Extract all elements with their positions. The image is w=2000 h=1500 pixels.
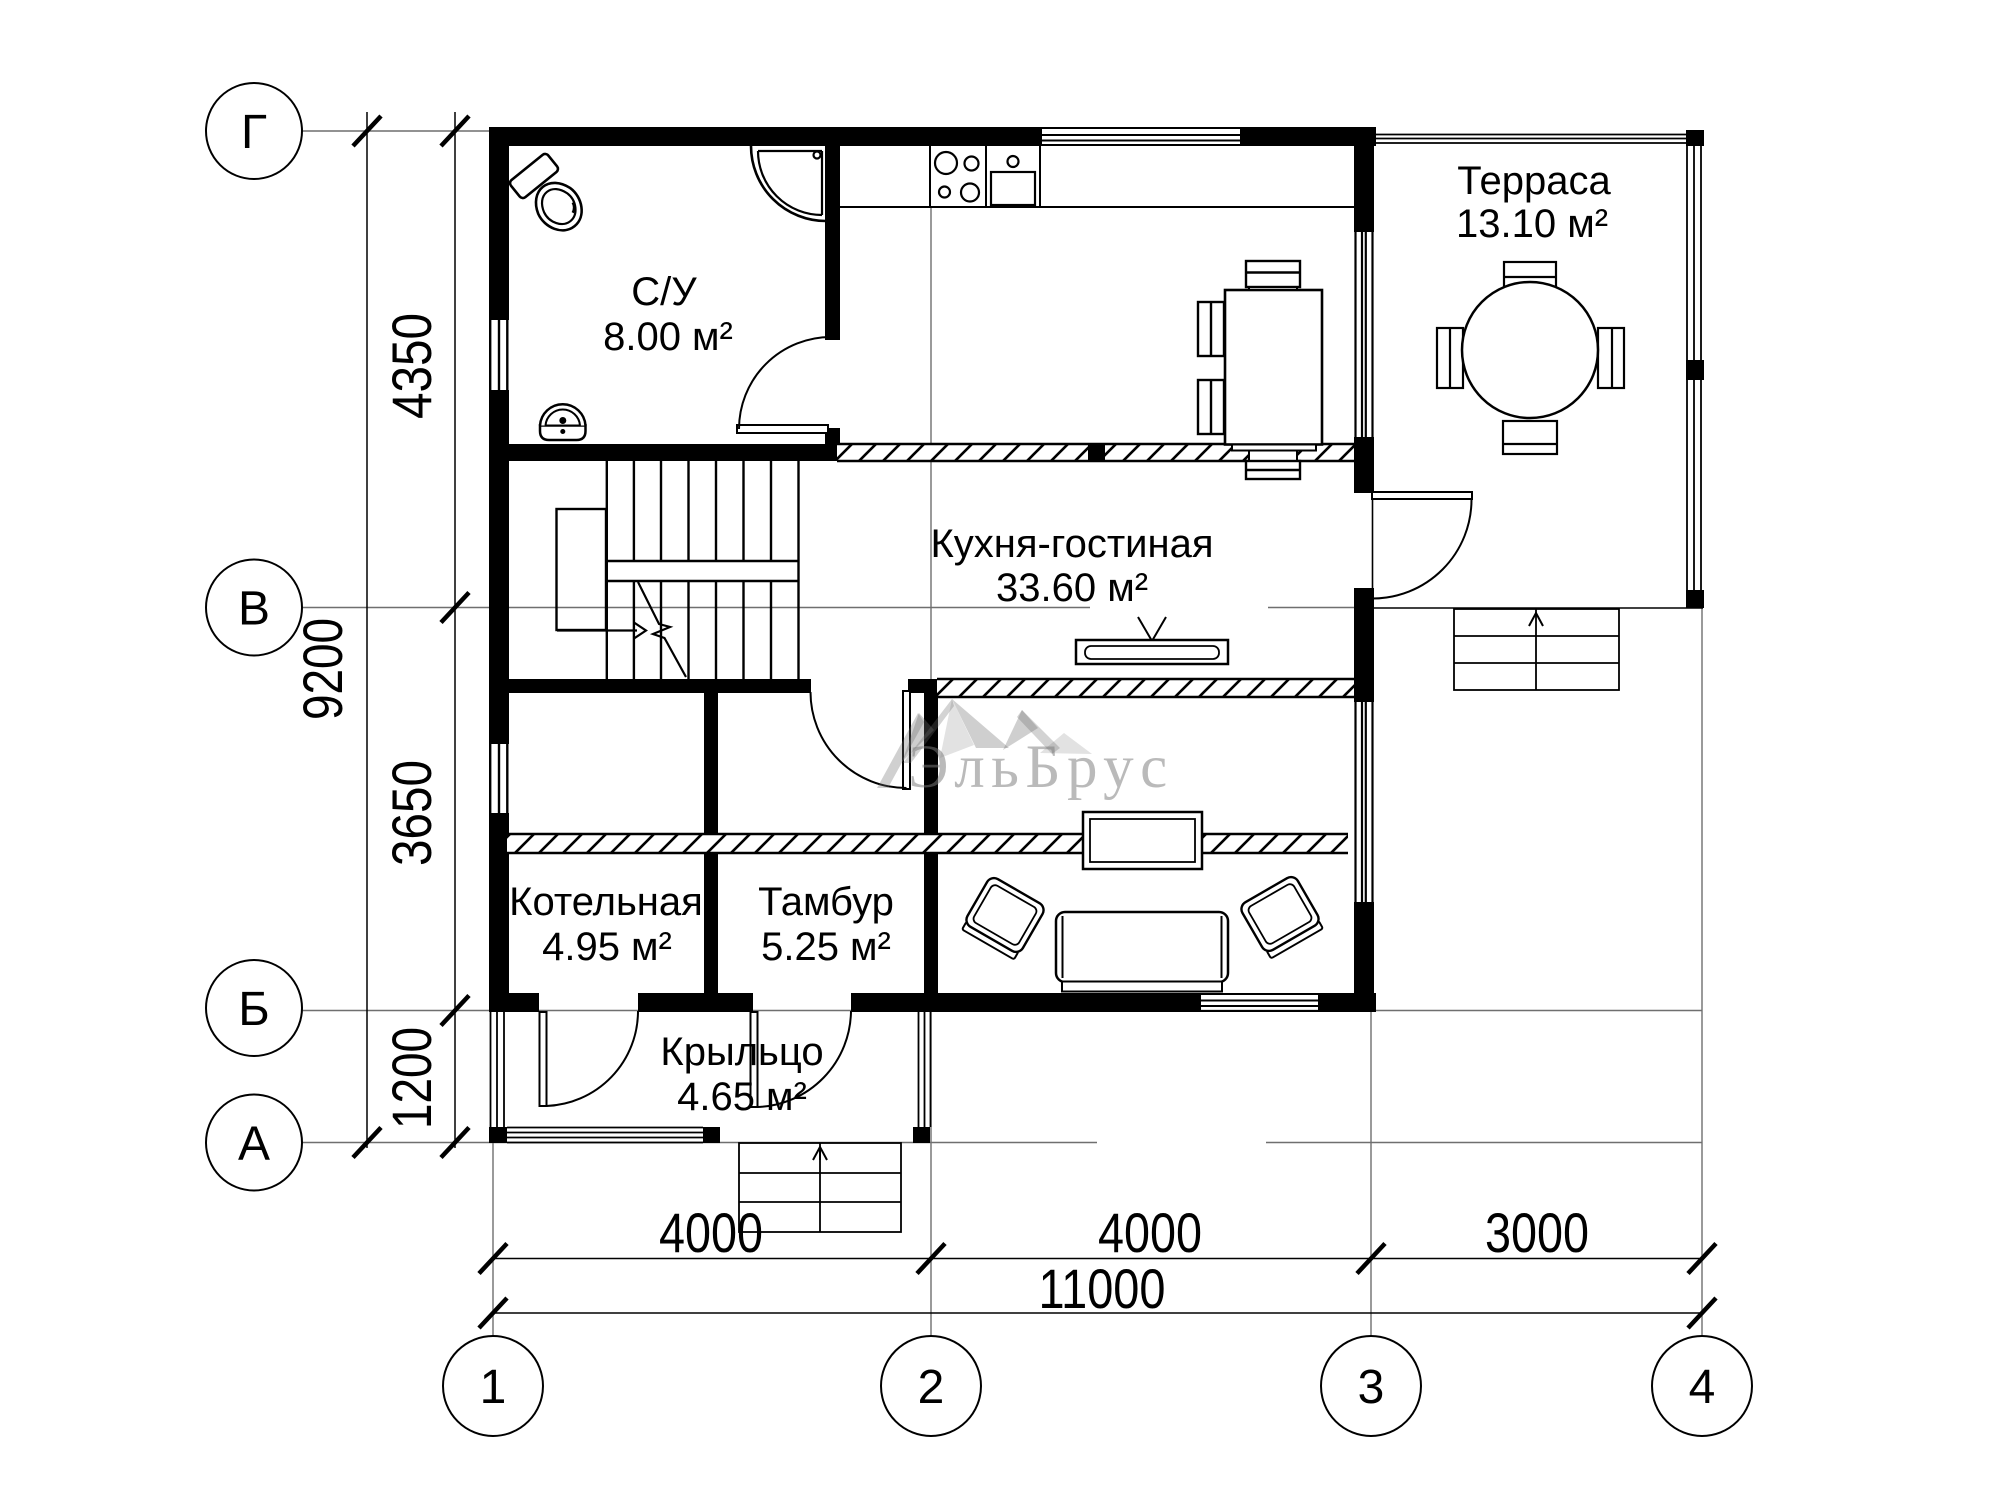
svg-text:ЭльБрус: ЭльБрус bbox=[908, 734, 1174, 801]
svg-text:8.00 м²: 8.00 м² bbox=[603, 315, 733, 359]
svg-text:4.65 м²: 4.65 м² bbox=[677, 1075, 807, 1119]
svg-text:3000: 3000 bbox=[1485, 1201, 1589, 1264]
svg-text:Котельная: Котельная bbox=[509, 880, 703, 924]
svg-text:Б: Б bbox=[238, 983, 270, 1036]
svg-text:4350: 4350 bbox=[380, 313, 443, 419]
svg-text:9200: 9200 bbox=[291, 618, 354, 720]
svg-text:Г: Г bbox=[241, 106, 267, 159]
svg-text:1: 1 bbox=[480, 1361, 507, 1414]
svg-text:11000: 11000 bbox=[1039, 1257, 1166, 1320]
svg-text:4.95 м²: 4.95 м² bbox=[542, 925, 672, 969]
svg-text:3650: 3650 bbox=[380, 760, 443, 866]
svg-text:5.25 м²: 5.25 м² bbox=[761, 925, 891, 969]
svg-text:Крыльцо: Крыльцо bbox=[660, 1030, 823, 1074]
svg-text:13.10 м²: 13.10 м² bbox=[1456, 202, 1608, 246]
svg-text:С/У: С/У bbox=[631, 270, 697, 314]
svg-text:2: 2 bbox=[918, 1361, 945, 1414]
svg-text:Терраса: Терраса bbox=[1457, 159, 1611, 203]
svg-text:33.60 м²: 33.60 м² bbox=[996, 566, 1148, 610]
svg-text:4: 4 bbox=[1689, 1361, 1716, 1414]
svg-text:4000: 4000 bbox=[1098, 1201, 1202, 1264]
svg-text:Кухня-гостиная: Кухня-гостиная bbox=[931, 522, 1214, 566]
svg-text:1200: 1200 bbox=[380, 1027, 443, 1129]
svg-text:В: В bbox=[238, 583, 270, 636]
svg-text:Тамбур: Тамбур bbox=[758, 880, 894, 924]
svg-text:А: А bbox=[238, 1118, 270, 1171]
svg-text:3: 3 bbox=[1358, 1361, 1385, 1414]
